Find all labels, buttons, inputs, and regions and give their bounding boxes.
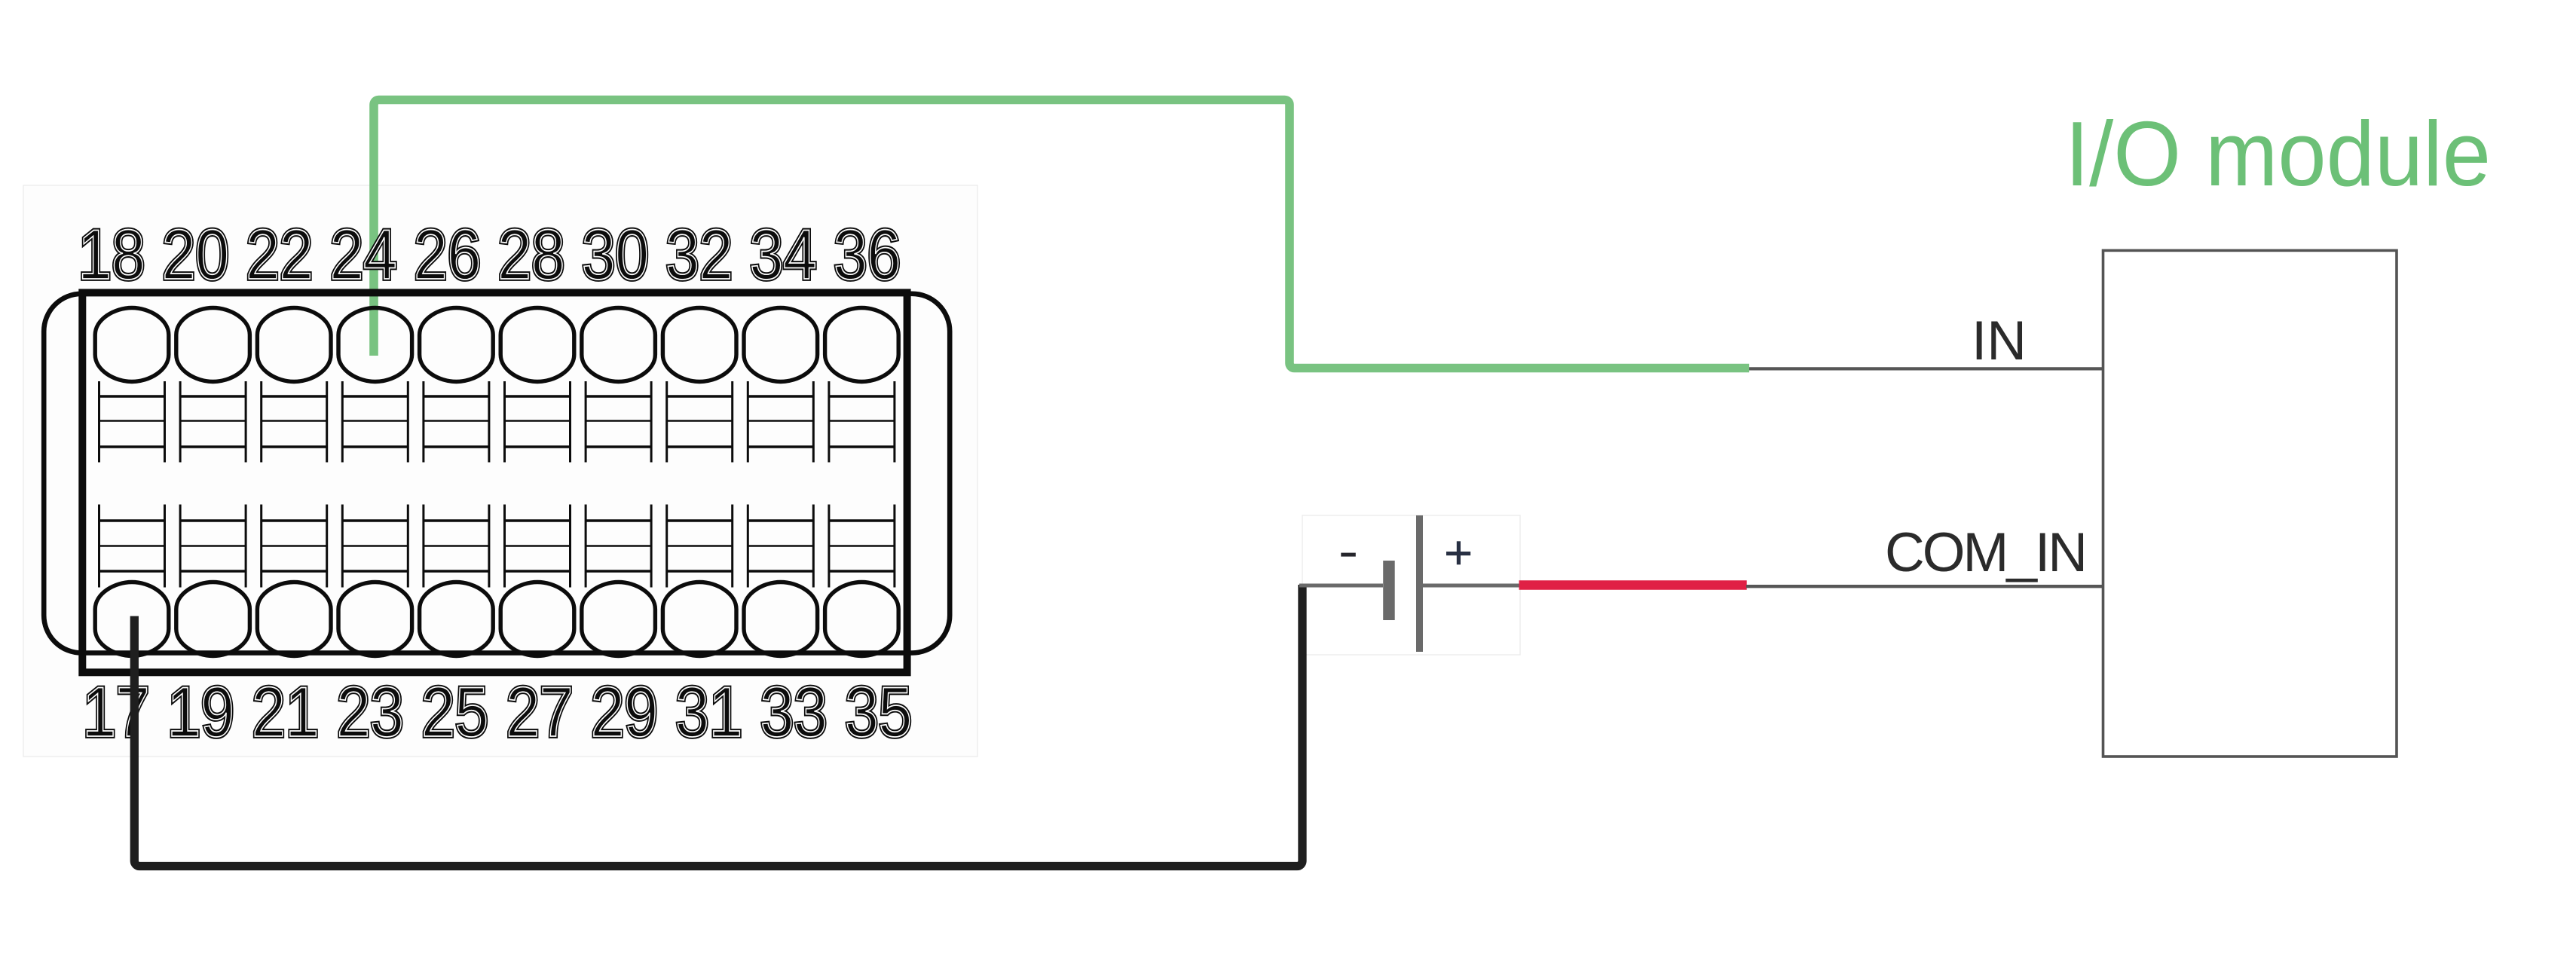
svg-text:25: 25	[421, 672, 488, 751]
svg-text:26: 26	[414, 215, 481, 294]
svg-text:30: 30	[582, 215, 649, 294]
svg-text:21: 21	[252, 672, 319, 751]
svg-text:33: 33	[760, 672, 828, 751]
svg-text:27: 27	[506, 672, 574, 751]
svg-text:18: 18	[78, 215, 145, 294]
svg-text:23: 23	[337, 672, 404, 751]
svg-text:IN: IN	[1972, 310, 2027, 371]
svg-text:COM_IN: COM_IN	[1885, 522, 2088, 583]
svg-text:34: 34	[750, 215, 817, 294]
svg-text:36: 36	[834, 215, 901, 294]
svg-text:17: 17	[83, 672, 150, 751]
svg-text:22: 22	[246, 215, 313, 294]
svg-text:31: 31	[675, 672, 742, 751]
svg-text:28: 28	[498, 215, 565, 294]
svg-text:24: 24	[330, 215, 397, 294]
svg-text:32: 32	[665, 215, 733, 294]
svg-text:I/O module: I/O module	[2065, 102, 2491, 205]
svg-text:35: 35	[845, 672, 912, 751]
svg-text:19: 19	[167, 672, 234, 751]
svg-text:29: 29	[591, 672, 658, 751]
svg-text:20: 20	[162, 215, 229, 294]
